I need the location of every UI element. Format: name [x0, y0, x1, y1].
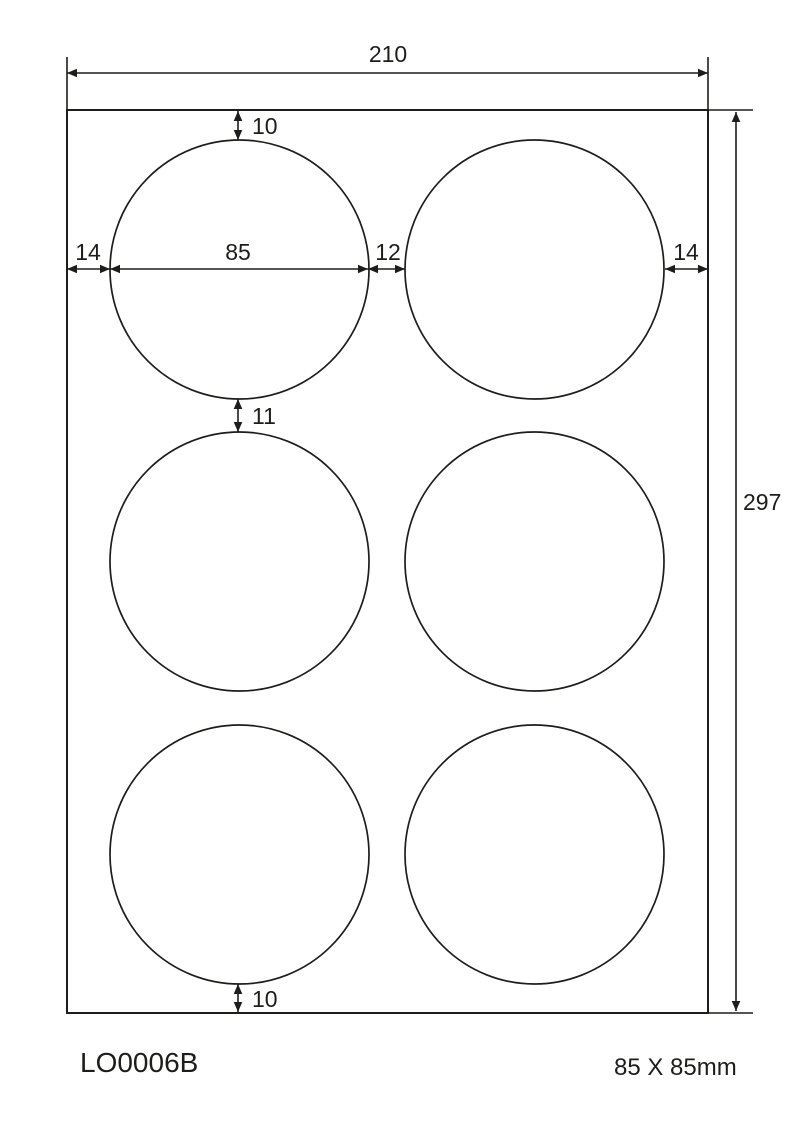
label-size-text: 85 X 85mm	[614, 1054, 737, 1081]
dimension-label-top-margin: 10	[252, 113, 278, 139]
diagram-canvas: 210 297 10 14 85 12 14 11 10 LO0006B 85 …	[0, 0, 796, 1124]
dimension-label-label-diameter: 85	[225, 239, 251, 265]
dimension-label-right-margin: 14	[673, 239, 699, 265]
dimension-label-sheet-width: 210	[369, 41, 407, 67]
dimension-label-bottom-margin: 10	[252, 986, 278, 1012]
dimension-label-left-margin: 14	[75, 239, 101, 265]
dimension-label-sheet-height: 297	[743, 489, 781, 515]
dimension-label-column-gap: 12	[375, 239, 401, 265]
dimension-label-row-gap: 11	[252, 403, 276, 429]
label-sheet-dimension-drawing: 210 297 10 14 85 12 14 11 10 LO0006B 85 …	[0, 0, 796, 1124]
product-code: LO0006B	[80, 1047, 198, 1078]
